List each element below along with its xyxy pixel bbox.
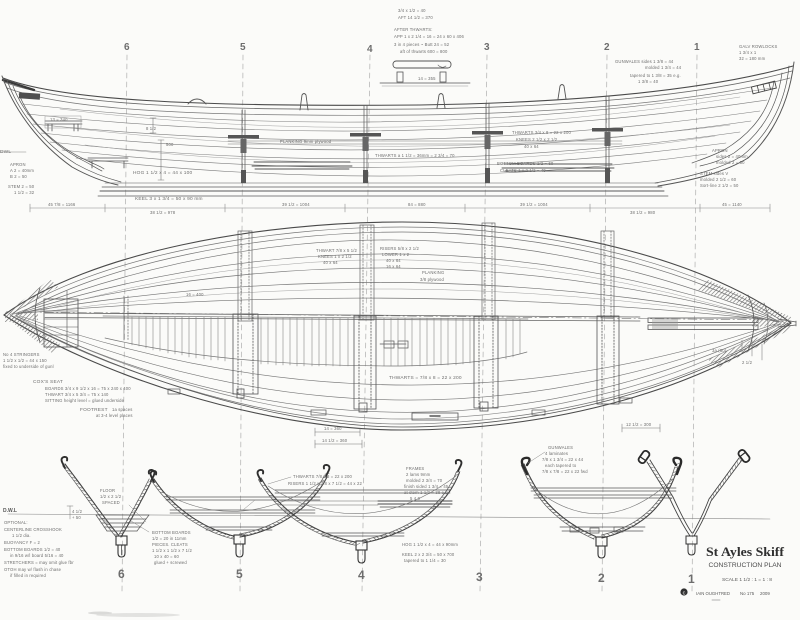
svg-text:5: 5 bbox=[236, 567, 243, 581]
svg-text:Sort-line 2 1/2 = 50: Sort-line 2 1/2 = 50 bbox=[700, 183, 739, 188]
svg-text:IAIN OUGHTRED: IAIN OUGHTRED bbox=[696, 591, 730, 596]
svg-text:4: 4 bbox=[358, 568, 365, 582]
svg-text:1: 1 bbox=[694, 42, 700, 53]
svg-text:glued + screwed: glued + screwed bbox=[154, 560, 187, 565]
svg-text:KNEES 2 1/2 x 2 1/2: KNEES 2 1/2 x 2 1/2 bbox=[516, 137, 558, 142]
svg-text:STEM sides V: STEM sides V bbox=[700, 171, 728, 176]
svg-text:STEM 2 = 50: STEM 2 = 50 bbox=[8, 184, 35, 189]
svg-text:RISERS 5/8 x 2 1/2: RISERS 5/8 x 2 1/2 bbox=[380, 246, 420, 251]
svg-text:SITTING height level = glued: SITTING height level = glued underside bbox=[45, 398, 125, 403]
svg-text:at 3-4 level places: at 3-4 level places bbox=[96, 413, 133, 418]
svg-text:molded 2 = 50: molded 2 = 50 bbox=[716, 160, 745, 165]
svg-text:APP 1 x 2 1/4 = 16 = 24 x 60: APP 1 x 2 1/4 = 16 = 24 x 60 x 406 bbox=[394, 34, 464, 39]
svg-text:KEEL 3 x 1 3/4 = 50 x 90: KEEL 3 x 1 3/4 = 50 x 90 mm bbox=[135, 196, 203, 202]
svg-text:1 1/2 dia.: 1 1/2 dia. bbox=[12, 533, 31, 538]
svg-text:4 1/2: 4 1/2 bbox=[72, 509, 83, 514]
svg-text:1 3/8 = 40: 1 3/8 = 40 bbox=[638, 79, 659, 84]
svg-text:RISERS 1 1/2 x 7/8 x 7 1/2 =: RISERS 1 1/2 x 7/8 x 7 1/2 = 44 x 22 bbox=[288, 481, 362, 486]
svg-text:if filled in required: if filled in required bbox=[10, 573, 46, 578]
svg-text:c: c bbox=[683, 591, 686, 597]
svg-text:PIECES. CLEATS: PIECES. CLEATS bbox=[152, 542, 188, 547]
svg-text:3/8 plywood: 3/8 plywood bbox=[420, 277, 445, 282]
svg-text:5 4 0: 5 4 0 bbox=[410, 496, 421, 501]
svg-text:HOG 1 1/2 x 4 = 44 x 100: HOG 1 1/2 x 4 = 44 x 100 bbox=[133, 170, 192, 176]
svg-text:SCALE 1 1/2 : 1 = 1 : 8: SCALE 1 1/2 : 1 = 1 : 8 bbox=[722, 577, 772, 583]
svg-text:2: 2 bbox=[598, 571, 605, 585]
svg-text:AFTER THWARTS:: AFTER THWARTS: bbox=[394, 27, 433, 32]
svg-text:B 2 = 50: B 2 = 50 bbox=[10, 174, 27, 179]
svg-text:LOWER 1 x 2: LOWER 1 x 2 bbox=[382, 252, 410, 257]
svg-text:OPTIONAL:: OPTIONAL: bbox=[4, 520, 28, 525]
svg-text:1: 1 bbox=[688, 572, 695, 586]
svg-text:GUNWALES sides 1 3/8 = 44: GUNWALES sides 1 3/8 = 44 bbox=[615, 59, 674, 64]
svg-text:40 x 64: 40 x 64 bbox=[524, 144, 539, 149]
svg-text:BUOYANCY F = 2: BUOYANCY F = 2 bbox=[4, 540, 41, 545]
svg-text:molded 1 3/4 = 44: molded 1 3/4 = 44 bbox=[645, 65, 682, 70]
svg-text:APRON: APRON bbox=[10, 162, 26, 167]
svg-text:12 1/2 = 300: 12 1/2 = 300 bbox=[626, 422, 652, 427]
svg-text:7/8 x 1 3/4 = 22 x 44: 7/8 x 1 3/4 = 22 x 44 bbox=[542, 457, 584, 462]
svg-text:1/2 = 20 in 11mm: 1/2 = 20 in 11mm bbox=[152, 536, 187, 541]
svg-text:KNEES 1 x 2 1/2: KNEES 1 x 2 1/2 bbox=[318, 254, 352, 259]
svg-text:OTOH may w/ flash in chase: OTOH may w/ flash in chase bbox=[4, 567, 62, 572]
svg-text:40 x 64: 40 x 64 bbox=[323, 260, 338, 265]
svg-text:2: 2 bbox=[604, 42, 610, 53]
svg-text:16 x 64: 16 x 64 bbox=[386, 264, 401, 269]
svg-text:6: 6 bbox=[118, 567, 125, 581]
svg-text:fixed to underside of gunl: fixed to underside of gunl bbox=[3, 364, 54, 369]
svg-text:BOARDS 3/4 x 9 1/2 x 16 = 75: BOARDS 3/4 x 9 1/2 x 16 = 75 x 240 x 400 bbox=[45, 386, 131, 391]
svg-text:molded 2 1/2 = 60: molded 2 1/2 = 60 bbox=[700, 177, 737, 182]
svg-text:39 1/2 = 1004: 39 1/2 = 1004 bbox=[520, 202, 548, 207]
svg-text:500: 500 bbox=[166, 142, 174, 147]
svg-text:GUNWALES: GUNWALES bbox=[548, 445, 573, 450]
svg-text:No 175: No 175 bbox=[740, 591, 755, 596]
svg-text:14 1/2 = 360: 14 1/2 = 360 bbox=[322, 438, 348, 443]
svg-text:6: 6 bbox=[124, 42, 130, 53]
svg-text:14 = 360: 14 = 360 bbox=[324, 426, 342, 431]
svg-text:St Ayles Skiff: St Ayles Skiff bbox=[706, 545, 785, 559]
svg-text:PLANKING 9mm plywood: PLANKING 9mm plywood bbox=[280, 139, 332, 144]
svg-text:HOG 1 1/2 x 4 = 44 x 90mm: HOG 1 1/2 x 4 = 44 x 90mm bbox=[402, 542, 458, 547]
svg-text:3: 3 bbox=[484, 42, 490, 53]
svg-text:8 1/2: 8 1/2 bbox=[146, 126, 157, 131]
svg-text:16 = 400: 16 = 400 bbox=[186, 292, 204, 297]
svg-text:3 in 4 pieces ~ Butt 24 = 52: 3 in 4 pieces ~ Butt 24 = 52 bbox=[394, 42, 450, 47]
svg-text:CONSTRUCTION PLAN: CONSTRUCTION PLAN bbox=[709, 562, 782, 569]
svg-text:tapered to 1 3/8 = 35 e.g.: tapered to 1 3/8 = 35 e.g. bbox=[630, 73, 681, 78]
svg-text:3: 3 bbox=[476, 570, 483, 584]
svg-text:CLEATS 1 x 2 1/2 = 40: CLEATS 1 x 2 1/2 = 40 bbox=[500, 168, 546, 173]
svg-text:BOTTOM BOARDS: BOTTOM BOARDS bbox=[152, 530, 191, 535]
svg-text:THWARTS a 1 1/2 = 36mm = 2: THWARTS a 1 1/2 = 36mm = 2 3/4 = 70 bbox=[375, 153, 455, 158]
svg-text:tapered to 1 1/4 = 30: tapered to 1 1/4 = 30 bbox=[404, 558, 446, 563]
svg-text:No 4 STRINGERS: No 4 STRINGERS bbox=[3, 352, 40, 357]
svg-text:PLANKING: PLANKING bbox=[422, 270, 444, 275]
svg-text:1/2 x 2 1/2: 1/2 x 2 1/2 bbox=[100, 494, 122, 499]
svg-text:THWARTS 3/4 x 8 = 22 x 200: THWARTS 3/4 x 8 = 22 x 200 bbox=[512, 130, 571, 135]
svg-text:aft of thwarts 600 = 80: aft of thwarts 600 = 800 bbox=[400, 49, 448, 54]
svg-text:STRETCHERS = may omit glue fbr: STRETCHERS = may omit glue fbr bbox=[4, 560, 74, 565]
svg-text:DWL: DWL bbox=[0, 149, 11, 155]
svg-text:CENTERLINE CROSSHOOK: CENTERLINE CROSSHOOK bbox=[4, 527, 62, 532]
svg-text:1 1/2 x 1 1/2 x 7 1/2: 1 1/2 x 1 1/2 x 7 1/2 bbox=[152, 548, 192, 553]
svg-text:7/8 x 7/8 = 22 x 22 fwd: 7/8 x 7/8 = 22 x 22 fwd bbox=[542, 469, 588, 474]
svg-text:1 1/2 = 32: 1 1/2 = 32 bbox=[14, 190, 35, 195]
svg-text:GALV ROWLOCKS: GALV ROWLOCKS bbox=[739, 44, 777, 49]
svg-text:45 = 1140: 45 = 1140 bbox=[722, 202, 742, 207]
svg-text:AFT 14 1/2 = 370: AFT 14 1/2 = 370 bbox=[398, 15, 433, 20]
svg-text:84 = 880: 84 = 880 bbox=[408, 202, 426, 207]
svg-text:KEEL 2 x 2 3/4 = 50 x 700: KEEL 2 x 2 3/4 = 50 x 700 bbox=[402, 552, 455, 557]
svg-text:THWARTS 7/8 x 8 = 22 x 200: THWARTS 7/8 x 8 = 22 x 200 bbox=[293, 474, 352, 479]
svg-text:2 1/2: 2 1/2 bbox=[742, 360, 753, 365]
svg-text:3a (50): 3a (50) bbox=[712, 348, 727, 353]
svg-text:40 x 64: 40 x 64 bbox=[386, 258, 401, 263]
svg-text:THWARTS = 7/8 x 8 = 22 x 20: THWARTS = 7/8 x 8 = 22 x 200 bbox=[389, 375, 462, 381]
svg-text:finish sided 1 3/4 = 45: finish sided 1 3/4 = 45 bbox=[404, 484, 449, 489]
svg-text:D.W.L: D.W.L bbox=[3, 508, 17, 514]
svg-text:in 9/16 w/l board 5/16 = 40: in 9/16 w/l board 5/16 = 40 bbox=[10, 553, 64, 558]
svg-text:13 = 340: 13 = 340 bbox=[50, 117, 68, 122]
svg-text:38 1/2 = 980: 38 1/2 = 980 bbox=[630, 210, 656, 215]
svg-text:+ 50: + 50 bbox=[72, 515, 81, 520]
svg-text:sides 2 = 40mm: sides 2 = 40mm bbox=[716, 154, 748, 159]
svg-text:4: 4 bbox=[367, 44, 373, 55]
svg-text:2 lams 9mm: 2 lams 9mm bbox=[406, 472, 431, 477]
svg-text:BOTTOM BOARDS 1/2 = 40: BOTTOM BOARDS 1/2 = 40 bbox=[4, 547, 61, 552]
svg-text:10 x 40 = 60: 10 x 40 = 60 bbox=[154, 554, 179, 559]
svg-text:1 3/4 x 1: 1 3/4 x 1 bbox=[739, 50, 757, 55]
svg-text:38 1/2 = 978: 38 1/2 = 978 bbox=[150, 210, 176, 215]
svg-text:1a spaces: 1a spaces bbox=[112, 407, 132, 412]
svg-text:3/4 x 1/2 = 40: 3/4 x 1/2 = 40 bbox=[398, 8, 426, 13]
svg-text:molded 2 3/4 = 70: molded 2 3/4 = 70 bbox=[406, 478, 443, 483]
svg-text:2009: 2009 bbox=[760, 591, 770, 596]
svg-text:COX'S SEAT: COX'S SEAT bbox=[33, 379, 63, 385]
svg-text:THWART 7/8 x 5 1/2: THWART 7/8 x 5 1/2 bbox=[316, 248, 358, 253]
svg-text:45 7/8 = 1166: 45 7/8 = 1166 bbox=[48, 202, 76, 207]
svg-text:39 1/2 = 1004: 39 1/2 = 1004 bbox=[282, 202, 310, 207]
svg-text:32 = 180 mm: 32 = 180 mm bbox=[739, 56, 766, 61]
svg-text:THWART 3/4 x 5 3/4 = 75 x 14: THWART 3/4 x 5 3/4 = 75 x 140 bbox=[45, 392, 109, 397]
svg-text:A 2 = 40mm: A 2 = 40mm bbox=[10, 168, 34, 173]
svg-text:FRAMES: FRAMES bbox=[406, 466, 424, 471]
svg-text:SPACED: SPACED bbox=[102, 500, 120, 505]
svg-text:APRON: APRON bbox=[712, 148, 728, 153]
svg-text:5: 5 bbox=[240, 42, 246, 53]
svg-text:4 laminates: 4 laminates bbox=[545, 451, 568, 456]
svg-text:1 1/2 x 1/2 = 44 x 150: 1 1/2 x 1/2 = 44 x 150 bbox=[3, 358, 47, 363]
svg-text:14 = 355: 14 = 355 bbox=[418, 76, 436, 81]
svg-text:FLOOR: FLOOR bbox=[100, 488, 115, 493]
svg-text:each tapered to: each tapered to bbox=[545, 463, 577, 468]
svg-text:at stem 1 1/2 = 38 e.g.: at stem 1 1/2 = 38 e.g. bbox=[404, 490, 449, 495]
svg-text:BOTTOM BOARDS 1/2 = 60: BOTTOM BOARDS 1/2 = 60 bbox=[497, 161, 554, 166]
